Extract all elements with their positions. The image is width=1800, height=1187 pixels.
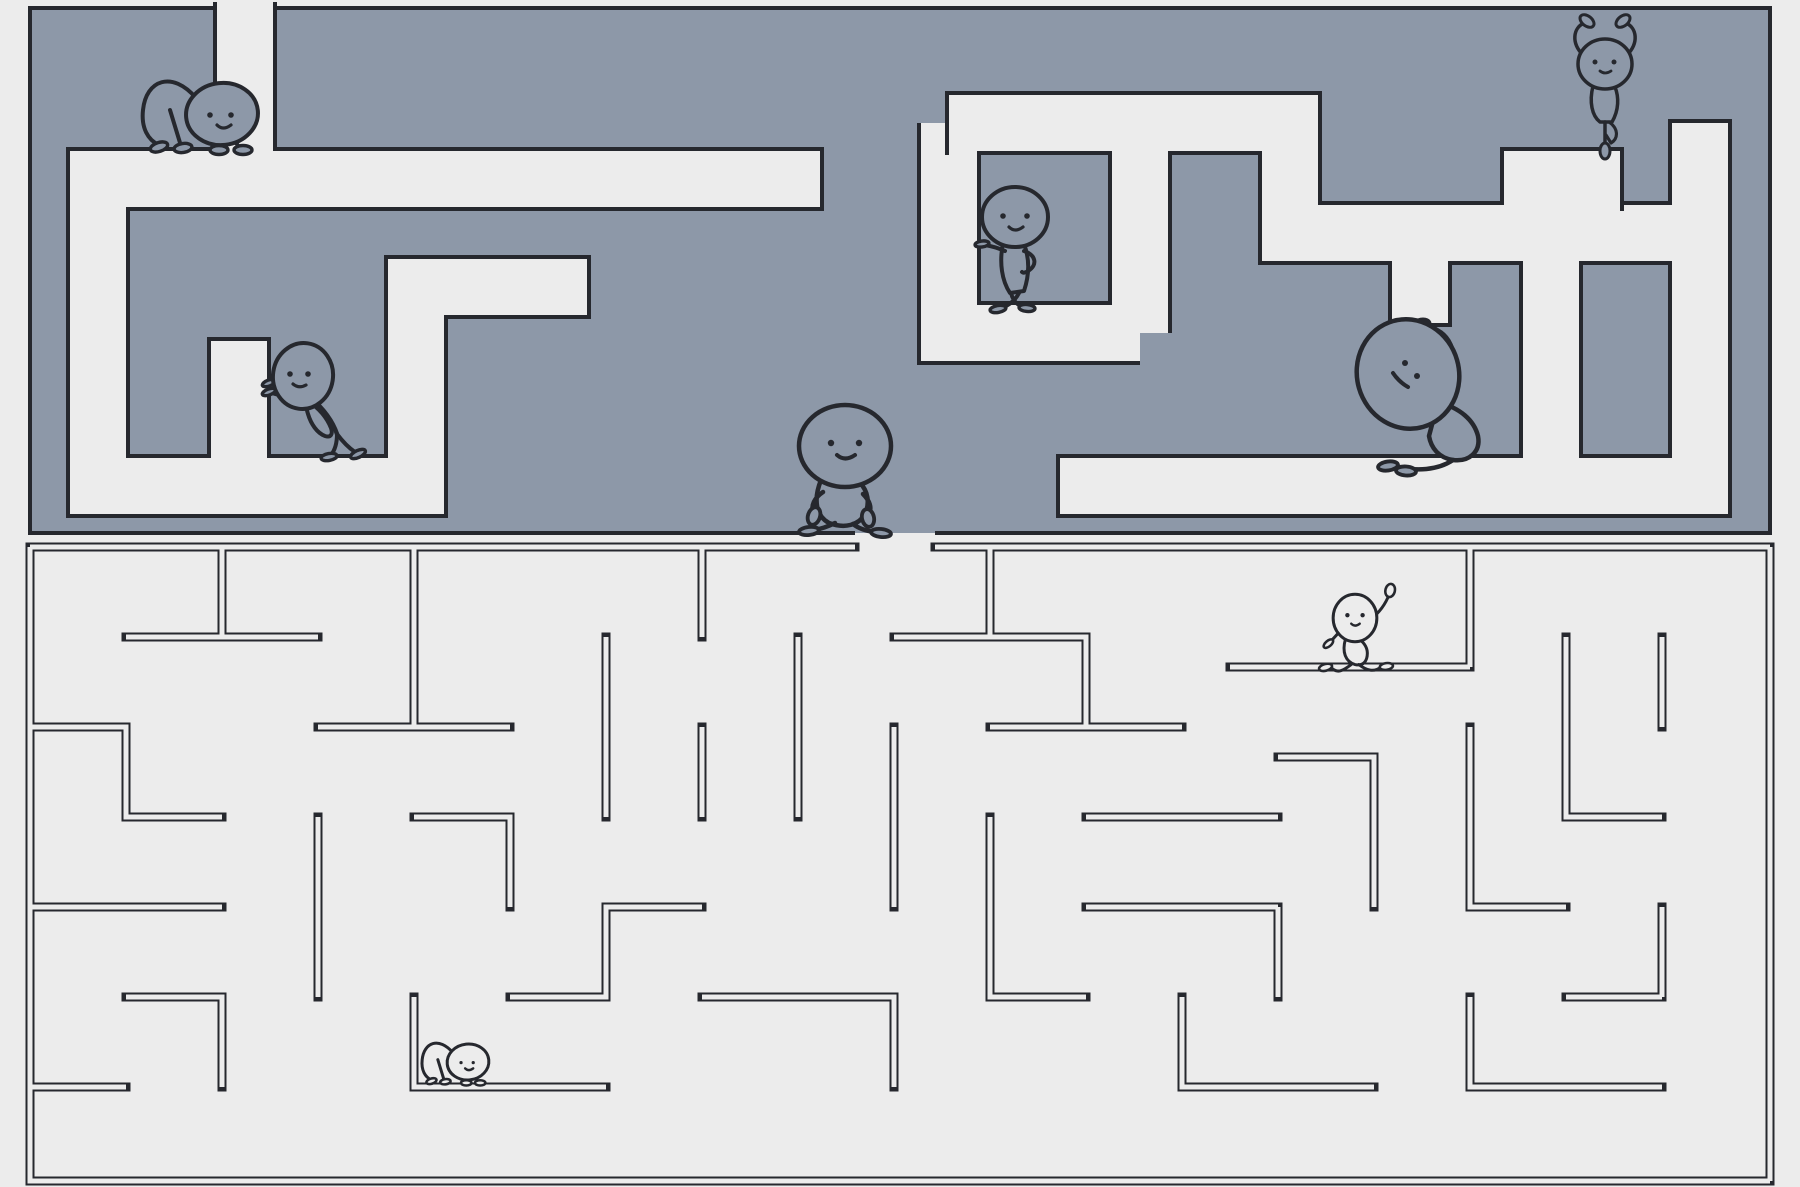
top-maze-exit-gap-lower [855,533,935,538]
maze-illustration [0,0,1800,1187]
maze-svg [0,0,1800,1187]
top-maze [30,2,1770,538]
